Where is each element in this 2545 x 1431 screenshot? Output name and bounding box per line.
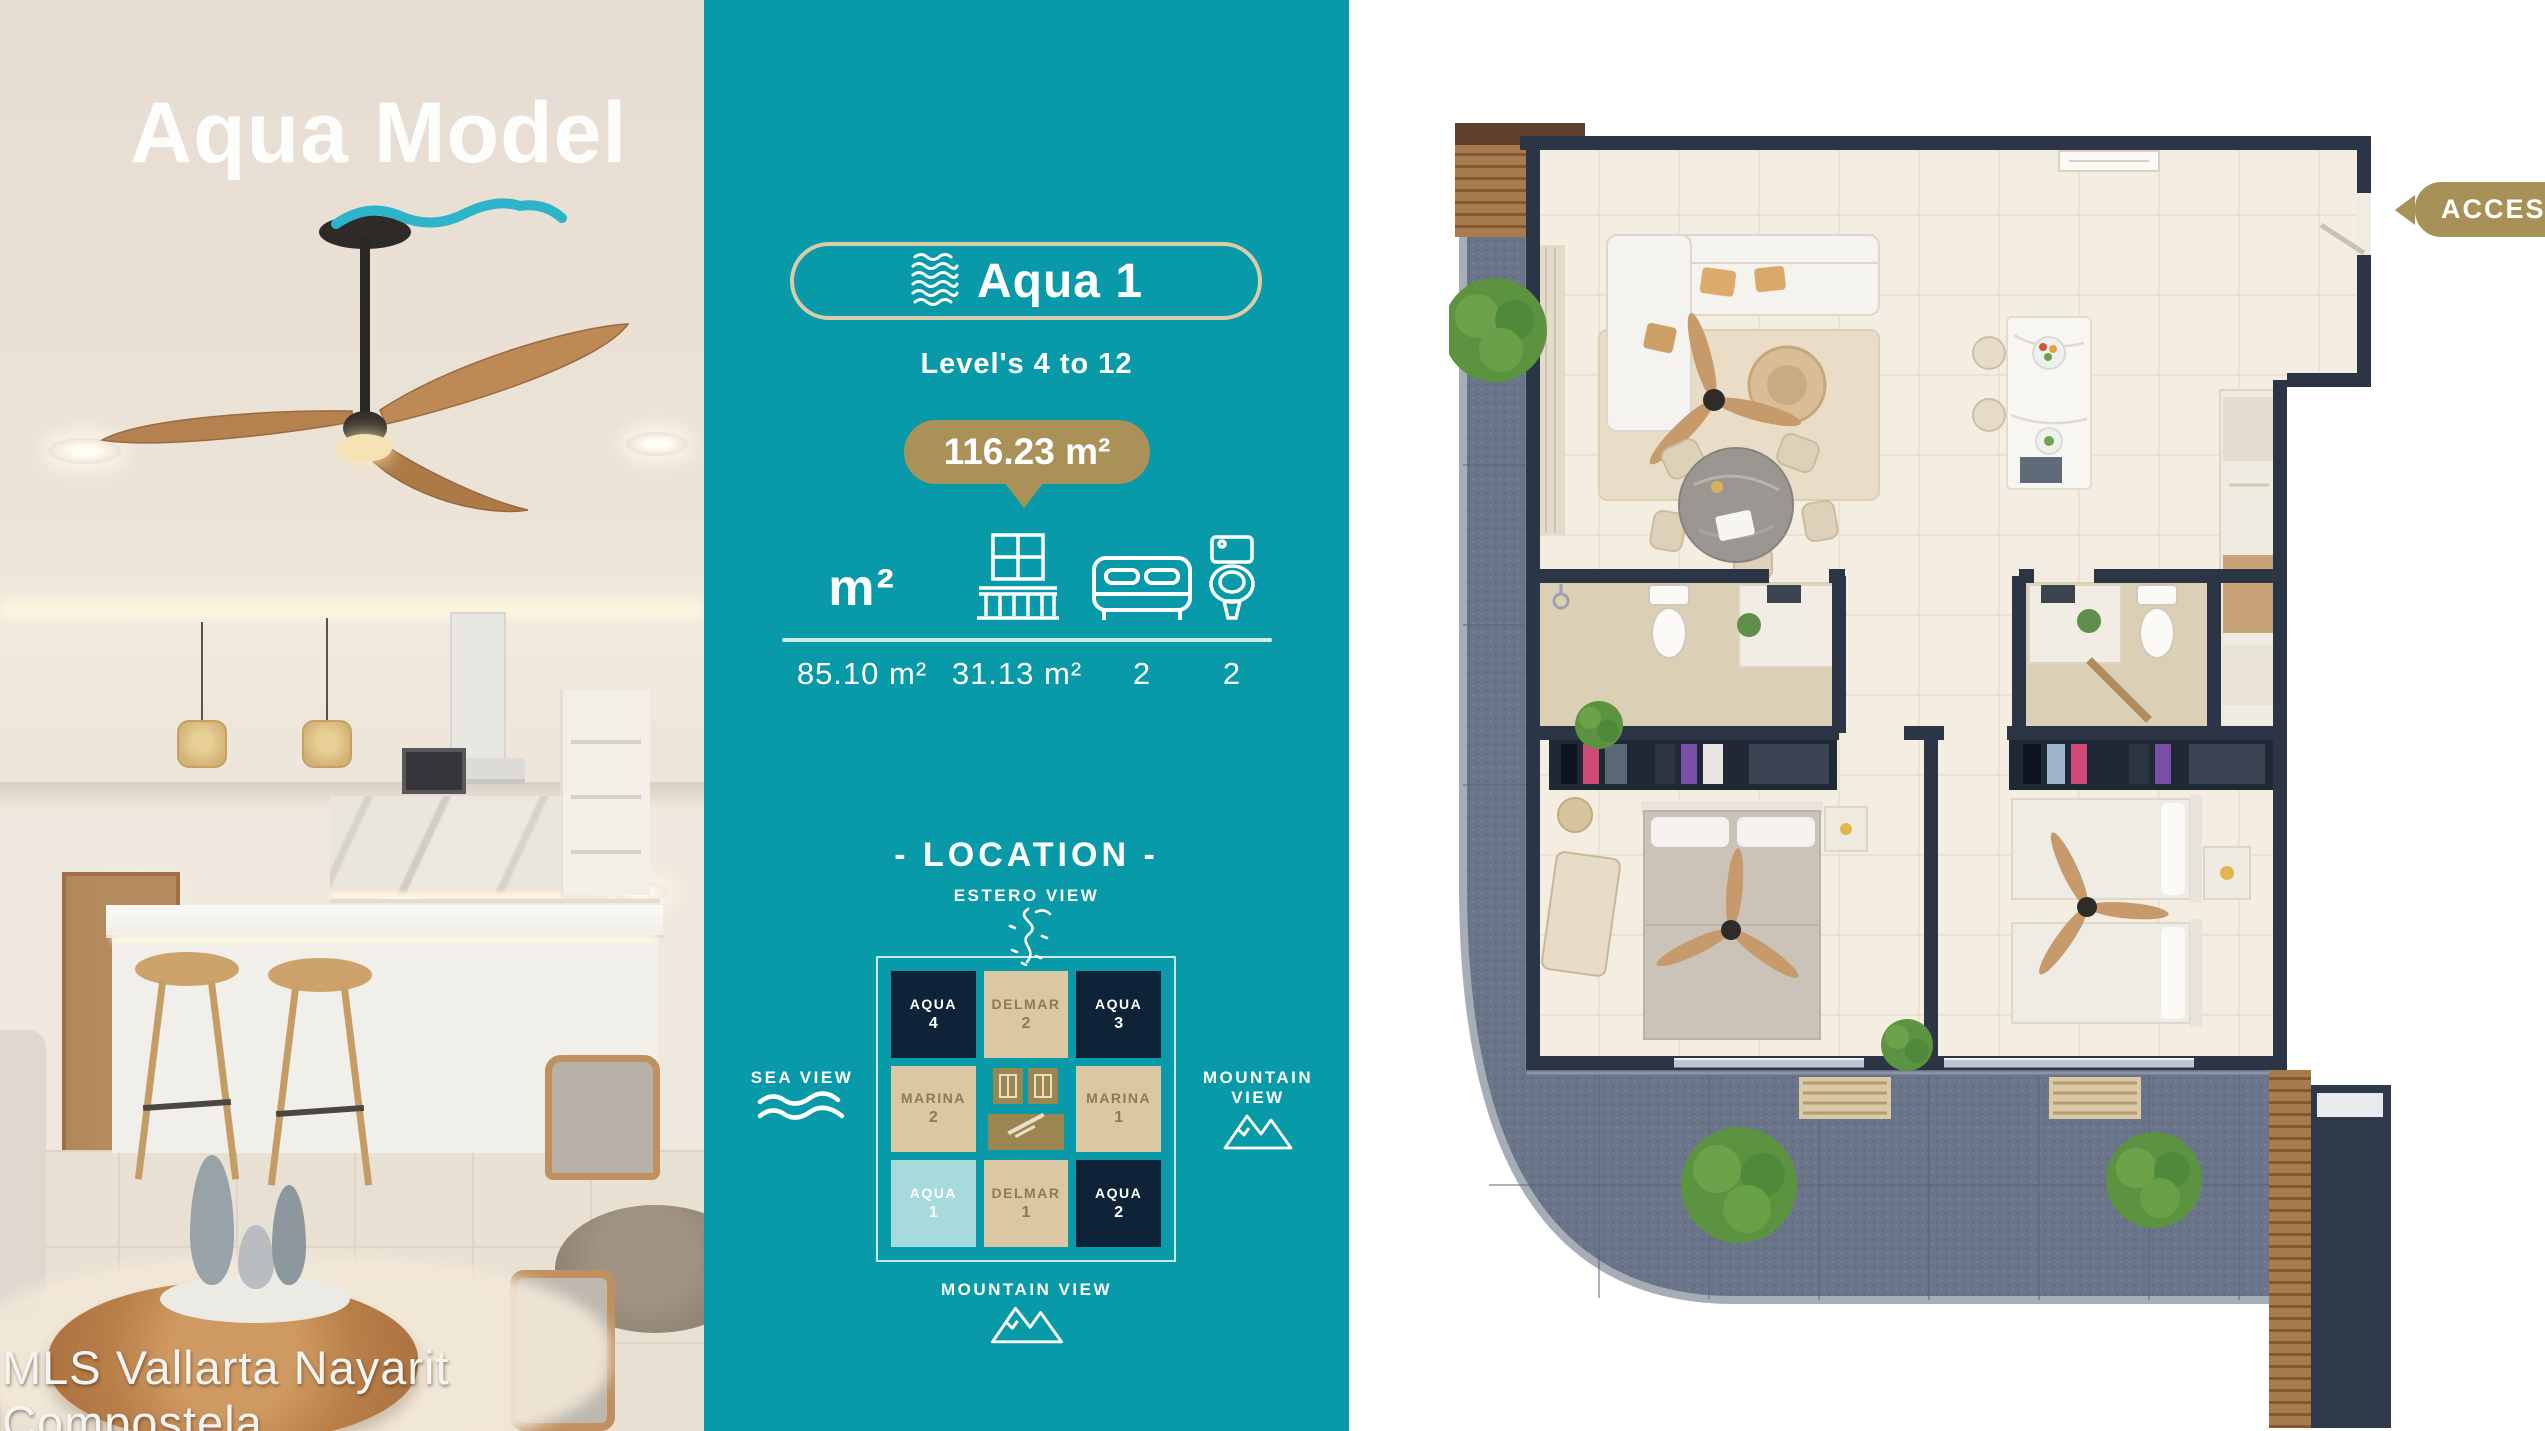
bedrooms-value: 2 — [1133, 656, 1151, 692]
interior-area-icon: m² — [828, 558, 896, 624]
grid-cell-marina-2: MARINA 2 — [891, 1066, 976, 1153]
ceiling-vent — [2059, 151, 2159, 171]
sea-view-block: SEA VIEW — [732, 1068, 872, 1133]
microwave — [402, 748, 466, 794]
mountain-icon — [1221, 1108, 1295, 1152]
wood-structure — [2269, 1070, 2391, 1428]
info-panel: Aqua 1 Level's 4 to 12 116.23 m² m² — [704, 0, 1349, 1431]
grid-cell-aqua-1-highlighted: AQUA 1 — [891, 1160, 976, 1247]
kitchen-shelves — [560, 690, 650, 895]
dining-chair — [545, 1055, 660, 1180]
marble-backsplash — [330, 796, 562, 896]
mountain-view-bottom-block: MOUNTAIN VIEW — [704, 1280, 1349, 1351]
grid-cell-aqua-3: AQUA 3 — [1076, 971, 1161, 1058]
access-label: ACCESS — [2415, 182, 2545, 237]
side-table — [1558, 798, 1592, 832]
interior-plant — [1575, 701, 1623, 749]
counter-stool — [1973, 399, 2005, 431]
toilet — [2137, 585, 2177, 658]
dining-table — [1679, 448, 1793, 562]
sea-waves-icon — [754, 1088, 850, 1128]
bath-plant — [1737, 613, 1761, 637]
location-diagram: SEA VIEW MOUNTAIN VIEW — [704, 952, 1349, 1272]
levels-text: Level's 4 to 12 — [704, 348, 1349, 381]
closet-right — [2009, 738, 2279, 790]
location-heading: - LOCATION - — [704, 836, 1349, 875]
counter-stool — [1973, 337, 2005, 369]
grid-core — [984, 1066, 1069, 1153]
range-hood — [450, 612, 506, 762]
access-badge: ACCESS — [2395, 182, 2545, 237]
flyer: Aqua Model MLS Vallarta Nayarit Composte… — [0, 0, 2545, 1431]
floorplan — [1449, 85, 2424, 1430]
mountain-view-bottom-label: MOUNTAIN VIEW — [704, 1280, 1349, 1300]
palm-plant — [1681, 1127, 1797, 1243]
sink — [1767, 585, 1801, 603]
pendant-cord — [201, 622, 203, 722]
estero-view-label: ESTERO VIEW — [704, 886, 1349, 906]
cove-light — [0, 600, 704, 618]
building-grid: AQUA 4 DELMAR 2 AQUA 3 MARINA 2 — [876, 956, 1176, 1262]
toilet — [1649, 585, 1689, 658]
floorplan-panel: ACCESS — [1349, 0, 2545, 1431]
bathrooms-value: 2 — [1223, 656, 1241, 692]
elevator-icon — [1028, 1068, 1058, 1104]
bar-stool — [268, 958, 372, 1198]
balcony-area-value: 31.13 m² — [952, 656, 1082, 692]
pendant-cord — [326, 618, 328, 722]
balcony-icon — [969, 532, 1065, 624]
bed-icon — [1090, 552, 1194, 624]
watermark: MLS Vallarta Nayarit Compostela — [2, 1340, 704, 1431]
sink — [2041, 585, 2075, 603]
interior-area-value: 85.10 m² — [797, 656, 927, 692]
spec-divider — [782, 638, 1272, 642]
sofa-arm — [0, 1030, 46, 1320]
grid-cell-delmar-2: DELMAR 2 — [984, 971, 1069, 1058]
mountain-view-right-block: MOUNTAIN VIEW — [1178, 1068, 1338, 1157]
stairs-icon — [988, 1114, 1064, 1150]
unit-name: Aqua 1 — [977, 254, 1143, 309]
total-area-value: 116.23 m² — [944, 431, 1111, 473]
waves-icon — [909, 252, 959, 310]
elevator-icon — [993, 1068, 1023, 1104]
grid-cell-marina-1: MARINA 1 — [1076, 1066, 1161, 1153]
mountain-view-right-label: MOUNTAIN VIEW — [1178, 1068, 1338, 1108]
bath-plant — [2077, 609, 2101, 633]
grid-cell-delmar-1: DELMAR 1 — [984, 1160, 1069, 1247]
pendant-light — [302, 720, 352, 768]
hall-plant — [1881, 1019, 1933, 1071]
page-title: Aqua Model — [130, 84, 627, 183]
bar-stool — [135, 952, 239, 1192]
mountain-icon — [987, 1300, 1067, 1346]
badge-pointer — [1004, 482, 1044, 508]
wave-underline-icon — [330, 196, 570, 238]
grid-cell-aqua-2: AQUA 2 — [1076, 1160, 1161, 1247]
interior-photo: Aqua Model MLS Vallarta Nayarit Composte… — [0, 0, 704, 1431]
total-area-badge: 116.23 m² — [904, 420, 1150, 484]
pendant-light — [177, 720, 227, 768]
grid-cell-aqua-4: AQUA 4 — [891, 971, 976, 1058]
sea-view-label: SEA VIEW — [732, 1068, 872, 1088]
toilet-icon — [1203, 534, 1261, 624]
ceiling-fan — [60, 210, 660, 590]
unit-badge: Aqua 1 — [790, 242, 1262, 320]
access-arrow-icon — [2395, 195, 2415, 225]
palm-plant — [2106, 1132, 2202, 1228]
under-cabinet-light — [330, 892, 562, 899]
spec-table: m² — [782, 532, 1272, 692]
